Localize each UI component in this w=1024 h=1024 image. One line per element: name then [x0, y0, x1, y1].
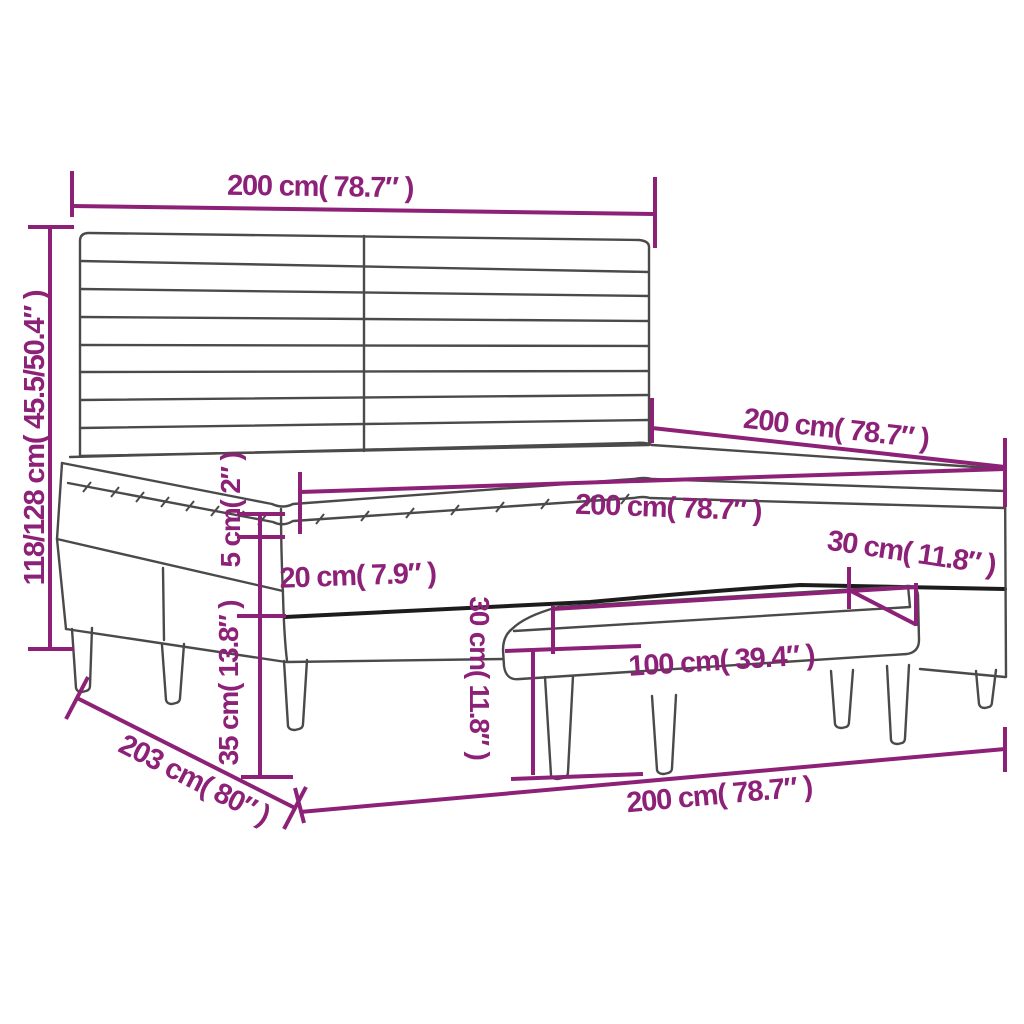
- dimension-diagram: 200 cm( 78.7″ ) 118/128 cm( 45.5/50.4″ )…: [0, 0, 1024, 1024]
- bench: [503, 586, 919, 779]
- label-bed-depth: 203 cm( 80″ ): [114, 728, 275, 831]
- bed-diagram-canvas: 200 cm( 78.7″ ) 118/128 cm( 45.5/50.4″ )…: [0, 0, 1024, 1024]
- label-mattress-thickness: 20 cm( 7.9″ ): [279, 557, 437, 594]
- label-mattress-width: 200 cm( 78.7″ ): [575, 489, 763, 527]
- label-topper-thickness: 5 cm( 2″ ): [215, 452, 246, 567]
- label-headboard-width: 200 cm( 78.7″ ): [227, 170, 414, 205]
- label-base-and-leg-height: 35 cm( 13.8″ ): [213, 601, 244, 766]
- label-bed-width: 200 cm( 78.7″ ): [625, 771, 814, 820]
- headboard: [80, 233, 649, 456]
- label-bench-height: 30 cm( 11.8″ ): [464, 596, 495, 759]
- label-bench-length: 100 cm( 39.4″ ): [628, 639, 816, 683]
- label-base-height: 30 cm( 11.8″ ): [825, 525, 998, 582]
- mattress-and-base: [57, 463, 1006, 677]
- dim-bench-height: [505, 646, 643, 779]
- dim-base-height: [849, 567, 915, 624]
- label-overall-height: 118/128 cm( 45.5/50.4″ ): [19, 290, 51, 585]
